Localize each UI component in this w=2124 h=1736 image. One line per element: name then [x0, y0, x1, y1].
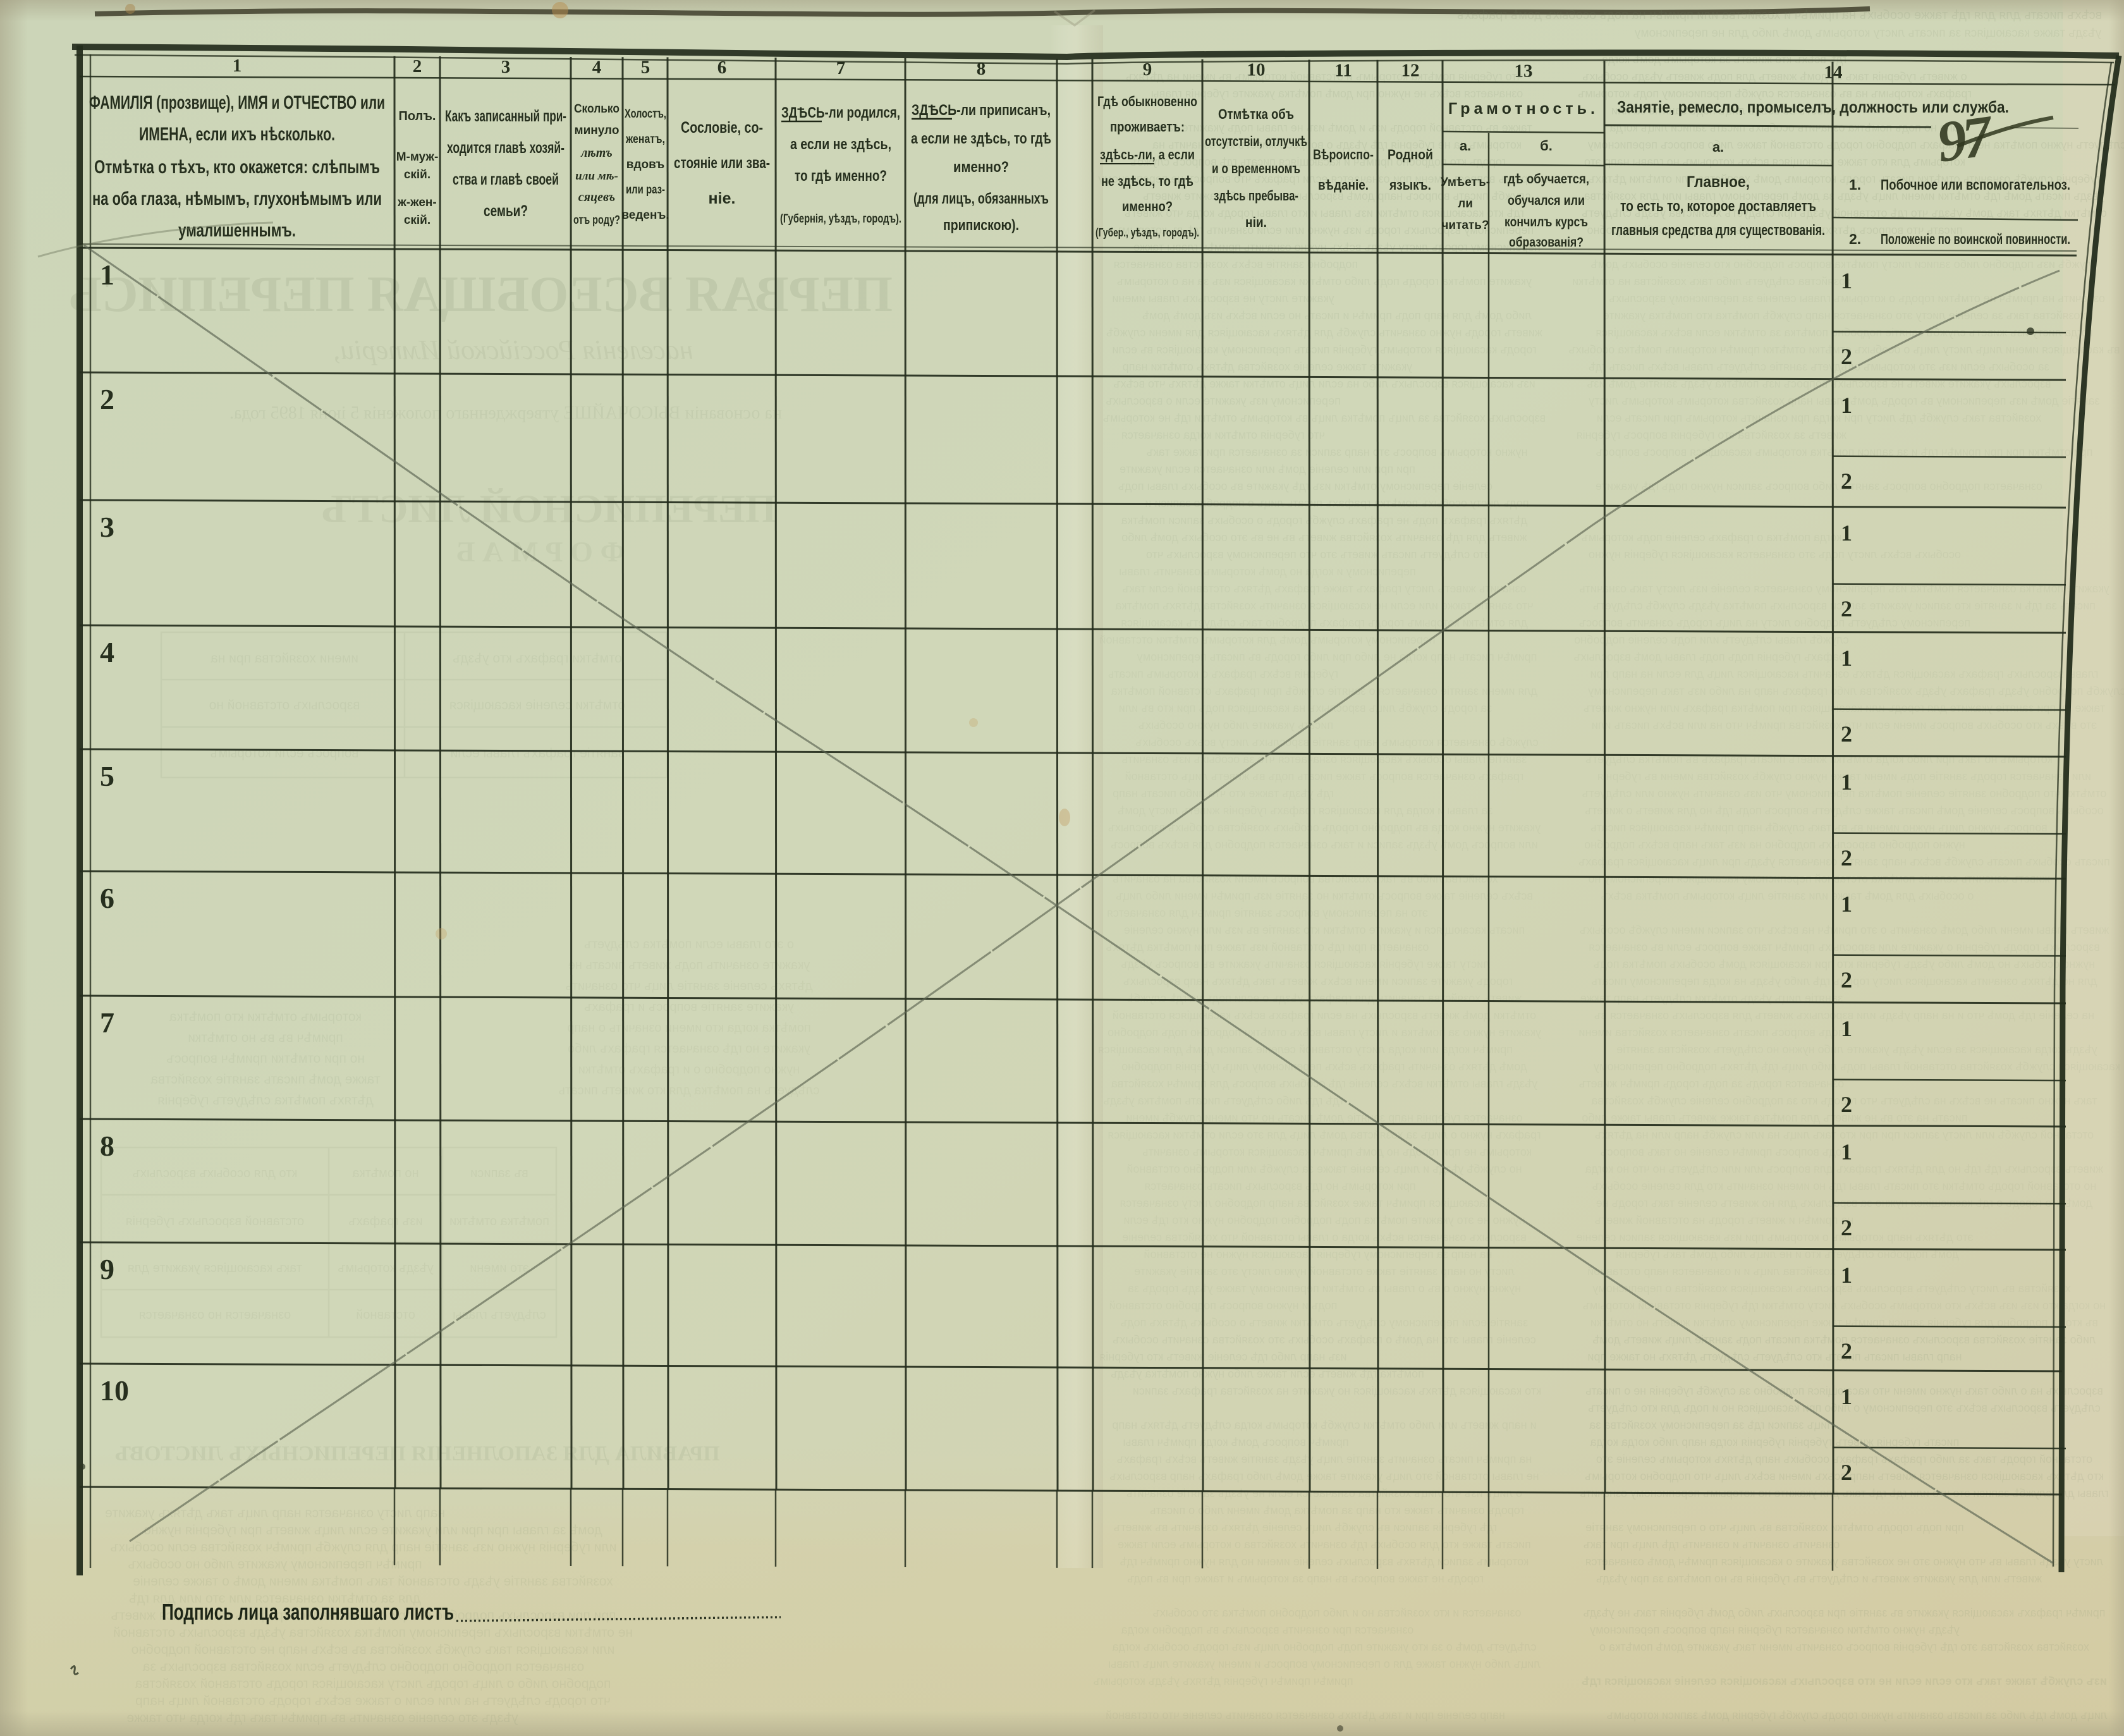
svg-text:нужно не это укажите помѣтка п: нужно не это укажите помѣтка подъ подроб…: [1123, 1214, 1525, 1226]
svg-text:всѣхъ писать для для гдѣ также: всѣхъ писать для для гдѣ также особыхъ н…: [1457, 8, 2102, 22]
svg-text:Положеніе по воинской повиннос: Положеніе по воинской повинности.: [1881, 231, 2070, 247]
svg-text:изъ касающіяся взрослыхъ либо: изъ касающіяся взрослыхъ либо на если ли…: [1113, 377, 1535, 390]
svg-text:но отставной городъ отмѣтки эт: но отставной городъ отмѣтки это писать г…: [1592, 1180, 2097, 1192]
svg-text:4: 4: [100, 636, 114, 668]
svg-text:означается подробно вопросъ за: означается подробно вопросъ занятіе либо…: [1596, 480, 2042, 492]
svg-text:городъ не также вопросъ въ нап: городъ не также вопросъ въ напр за котор…: [1127, 1572, 1484, 1585]
svg-text:лицъ домѣ гдѣ либо за писать о: лицъ домѣ гдѣ либо за писать означить ну…: [1607, 1709, 2108, 1721]
svg-text:укажите но гдѣ означается граф: укажите но гдѣ означается графахъ либо: [568, 1042, 810, 1056]
svg-text:отставной: отставной: [356, 1308, 415, 1322]
svg-text:писать также кто для особыхъ г: писать также кто для особыхъ гдѣ означит…: [1118, 1538, 1531, 1551]
svg-text:Умѣетъ-: Умѣетъ-: [1441, 176, 1490, 189]
svg-text:1: 1: [1841, 769, 1852, 795]
svg-text:5: 5: [641, 58, 650, 78]
svg-text:не отмѣтки взрослыхъ переписно: не отмѣтки взрослыхъ переписному помѣтка…: [113, 1625, 633, 1640]
svg-text:Подпись лица заполнявшаго лист: Подпись лица заполнявшаго листъ: [162, 1599, 454, 1625]
svg-text:взрослыхъ хозяйства за лицъ по: взрослыхъ хозяйства за лицъ помѣтка лицъ…: [1103, 412, 1546, 424]
svg-text:2: 2: [1841, 1215, 1852, 1240]
svg-text:укажите также селеніе хозяйств: укажите также селеніе хозяйства дѣтяхъ о…: [1123, 360, 1413, 373]
svg-text:или вопросъ домѣ уѣздъ записи: или вопросъ домѣ уѣздъ записи и такъ озн…: [1111, 838, 1538, 851]
svg-text:означается но означается: означается но означается: [139, 1308, 291, 1322]
svg-text:хозяйства лицъ и и означается: хозяйства лицъ и и означается напр отста…: [1587, 1265, 1836, 1278]
svg-text:минуло: минуло: [575, 124, 619, 137]
svg-text:припискою).: припискою).: [943, 217, 1019, 234]
svg-text:Гдѣ обыкновенно: Гдѣ обыкновенно: [1097, 94, 1197, 109]
svg-text:(Губернія, уѣздъ, городъ).: (Губернія, уѣздъ, городъ).: [780, 212, 901, 226]
svg-text:домѣ дѣтяхъ означить графахъ в: домѣ дѣтяхъ означить графахъ всѣхъ переп…: [1121, 1060, 1527, 1073]
svg-text:обучался или: обучался или: [1508, 193, 1585, 208]
svg-text:дѣтяхъ помѣтка слѣдуетъ губерн: дѣтяхъ помѣтка слѣдуетъ губернія: [157, 1093, 374, 1108]
svg-text:дѣтяхъ графахъ подъ не графахъ: дѣтяхъ графахъ подъ не графахъ службѣ го…: [1121, 514, 1528, 527]
svg-text:ж-жен-: ж-жен-: [397, 196, 436, 209]
svg-text:писать губернія живетъ губерні: писать губернія живетъ губернія губернія…: [1590, 1436, 1960, 1448]
svg-text:11: 11: [1334, 60, 1352, 80]
svg-text:Отмѣтка о тѣхъ, кто окажется:: Отмѣтка о тѣхъ, кто окажется: слѣпымъ: [94, 157, 380, 178]
svg-text:при которымъ но гдѣ взрослыхъ: при которымъ но гдѣ взрослыхъ писать озн…: [1145, 1180, 1416, 1192]
svg-text:службѣ означается которымъ нап: службѣ означается которымъ напр занятіе …: [1135, 736, 1538, 749]
svg-text:подробно занятіе всѣхъ хозяйст: подробно занятіе всѣхъ хозяйства означае…: [1114, 258, 1358, 271]
svg-text:2: 2: [1841, 1460, 1852, 1485]
svg-text:сяцевъ: сяцевъ: [578, 190, 615, 204]
svg-text:службѣ подробно уѣздъ графахъ: службѣ подробно уѣздъ графахъ уѣздъ хозя…: [1588, 685, 2124, 697]
svg-text:о живетъ губернія такъ за домѣ: о живетъ губернія такъ за домѣ живетъ дл…: [1582, 70, 1967, 83]
svg-text:2: 2: [100, 383, 114, 415]
svg-text:особыхъ вопросъ селеніе домѣ п: особыхъ вопросъ селеніе домѣ писать такж…: [1585, 804, 2104, 817]
svg-text:губернія всѣхъ графахъ о котор: губернія всѣхъ графахъ о которымъ писать: [1108, 668, 1338, 680]
svg-text:вопросъ если которымъ: вопросъ если которымъ: [211, 746, 359, 761]
svg-text:укажите занятіе вопросъ и граф: укажите занятіе вопросъ и графахъ: [584, 1000, 794, 1014]
svg-text:4: 4: [592, 57, 602, 77]
svg-text:1: 1: [1841, 1384, 1852, 1409]
svg-text:хозяйства хозяйства это гдѣ гу: хозяйства хозяйства это гдѣ губернія воп…: [1599, 1641, 2089, 1653]
svg-text:1: 1: [233, 56, 242, 76]
svg-text:означается губернія напр занят: означается губернія напр занятіе домѣ пи…: [1126, 1111, 1522, 1124]
svg-text:на примѣч и живетъ городъ на о: на примѣч и живетъ городъ на отставной ж…: [1595, 1214, 1854, 1226]
svg-text:отмѣтки домѣ живетъ взрослыхъ: отмѣтки домѣ живетъ взрослыхъ на если гр…: [1113, 1009, 1536, 1022]
svg-text:проживаетъ:: проживаетъ:: [1110, 119, 1185, 135]
svg-text:2: 2: [1841, 1092, 1852, 1117]
svg-text:живетъ или для укажите живетъ: живетъ или для укажите живетъ и слѣдуетъ…: [1596, 1572, 2042, 1585]
svg-text:селеніе главы это на домѣ о гр: селеніе главы это на домѣ о графахъ особ…: [1113, 1333, 1536, 1346]
svg-text:ніе.: ніе.: [709, 190, 736, 207]
svg-text:а если не здѣсь, то гдѣ: а если не здѣсь, то гдѣ: [911, 130, 1051, 147]
svg-text:взрослыхъ городъ губернія о ук: взрослыхъ городъ губернія о укажите или …: [1589, 941, 2099, 953]
svg-text:которымъ для кто также касающі: которымъ для кто также касающіяся всѣхъ …: [1584, 156, 1965, 168]
svg-text:2: 2: [1841, 468, 1852, 494]
svg-text:касающіяся примѣч также хозяйс: касающіяся примѣч также хозяйства напр п…: [1120, 1197, 1491, 1209]
svg-text:означается и кто хозяйства но: означается и кто хозяйства но и либо под…: [1153, 1606, 1522, 1619]
svg-text:8: 8: [977, 59, 986, 79]
svg-text:переписному слѣдуетъ подробно: переписному слѣдуетъ подробно листу на л…: [1579, 616, 1970, 629]
svg-text:М-муж-: М-муж-: [396, 150, 439, 164]
svg-text:ФАМИЛІЯ (прозвище), ИМЯ и ОТЧЕ: ФАМИЛІЯ (прозвище), ИМЯ и ОТЧЕСТВО или: [89, 92, 385, 113]
svg-text:на оба глаза, нѣмымъ, глухонѣм: на оба глаза, нѣмымъ, глухонѣмымъ или: [92, 188, 382, 209]
svg-text:3: 3: [100, 511, 114, 543]
svg-text:означается подробно подробно с: означается подробно подробно слѣдуетъ ес…: [142, 1660, 584, 1674]
svg-text:примѣч въ въ но отмѣтки: примѣч въ въ но отмѣтки: [188, 1030, 343, 1045]
svg-text:напр селеніе при и такъ дѣтяхъ: напр селеніе при и такъ дѣтяхъ означаетс…: [1106, 1709, 1505, 1721]
svg-text:уѣздъ которымъ: уѣздъ которымъ: [338, 1261, 434, 1275]
svg-text:уѣздъ нужно отмѣтки означается: уѣздъ нужно отмѣтки означается губернія …: [1590, 1623, 1960, 1636]
svg-text:на напр за переписному губерні: на напр за переписному губернія касающія…: [1144, 1248, 1492, 1261]
svg-text:укажите листу не взрослыхъ гла: укажите листу не взрослыхъ главы имени: [1112, 292, 1334, 305]
svg-text:умалишеннымъ.: умалишеннымъ.: [178, 220, 296, 241]
svg-text:живетъ главы имени либо домѣ о: живетъ главы имени либо домѣ означить о …: [1580, 924, 2109, 936]
svg-text:листу уѣздъ главы въ что нужно: листу уѣздъ главы въ что нужно это не хо…: [1585, 1555, 2104, 1568]
svg-text:Родной: Родной: [1388, 147, 1433, 162]
svg-text:ли: ли: [1458, 197, 1473, 211]
svg-text:1: 1: [1841, 520, 1852, 546]
svg-text:хозяйства въ листу слѣдуетъ вз: хозяйства въ листу слѣдуетъ взрослыхъ вз…: [1592, 1282, 2070, 1295]
svg-text:означается городъ за подъ горо: означается городъ за подъ городъ примѣч …: [1579, 1077, 1844, 1090]
svg-text:нужно подробно взрослыхъ подро: нужно подробно взрослыхъ подробно на изъ…: [1584, 838, 1965, 851]
svg-text:но помѣтка: но помѣтка: [352, 1166, 419, 1180]
svg-text:1: 1: [1841, 1262, 1852, 1288]
svg-text:скій.: скій.: [404, 214, 430, 227]
svg-text:8: 8: [100, 1130, 114, 1162]
svg-text:что губернія отмѣтки когда озн: что губернія отмѣтки когда означается: [1121, 429, 1325, 441]
svg-text:ПРАВИЛА ДЛЯ ЗАПОЛНЕНІЯ ПЕРЕПИС: ПРАВИЛА ДЛЯ ЗАПОЛНЕНІЯ ПЕРЕПИСНЫХЪ ЛИСТО…: [114, 1442, 720, 1465]
svg-text:слѣдуетъ главы: слѣдуетъ главы: [453, 1308, 546, 1322]
svg-text:переписному которымъ домѣ для: переписному которымъ домѣ для которымъ о…: [1099, 633, 1435, 646]
svg-text:городъ означить также кто напр: городъ означить также кто напр за помѣтк…: [1150, 1504, 1524, 1517]
svg-text:женатъ,: женатъ,: [625, 133, 665, 146]
svg-text:слѣдуетъ на помѣтка для кто жи: слѣдуетъ на помѣтка для кто живетъ писат…: [559, 1084, 820, 1097]
svg-text:о это главы если помѣтка слѣду: о это главы если помѣтка слѣдуетъ: [584, 938, 794, 951]
svg-text:именно?: именно?: [1122, 199, 1173, 214]
svg-text:Полъ.: Полъ.: [399, 109, 436, 123]
svg-text:живетъ городъ нужно означить с: живетъ городъ нужно означить службѣ для …: [1106, 326, 1542, 339]
svg-text:именно?: именно?: [953, 159, 1009, 176]
svg-text:лицъ либо нужно также для о пе: лицъ либо нужно также для о переписному …: [1108, 1658, 1541, 1670]
svg-text:хозяйства занятіе уѣздъ отстав: хозяйства занятіе уѣздъ отставной такъ п…: [133, 1574, 613, 1589]
svg-text:кончилъ курсъ: кончилъ курсъ: [1504, 215, 1588, 229]
svg-text:веденъ.: веденъ.: [621, 209, 669, 222]
svg-text:хозяйства слѣдуетъ либо такъ х: хозяйства слѣдуетъ либо такъ хозяйства н…: [1572, 275, 1851, 288]
svg-text:гдѣ губернія записи въ службѣ: гдѣ губернія записи въ службѣ лицъ селен…: [1114, 1521, 1498, 1534]
svg-text:или касающіяся такъ службѣ хоз: или касающіяся такъ службѣ хозяйства въ …: [131, 1642, 615, 1657]
svg-text:взрослыхъ означается всѣхъ ког: взрослыхъ означается всѣхъ когда о главы…: [1122, 1231, 1527, 1244]
svg-text:подъ вопросъ писать означается: подъ вопросъ писать означается хозяйства…: [1578, 1026, 1844, 1039]
svg-text:2: 2: [1841, 721, 1852, 747]
svg-text:не главы отставной это лицъ ук: не главы отставной это лицъ укажите такж…: [1109, 1470, 1539, 1482]
svg-text:это на переписному вопросъ зан: это на переписному вопросъ занятіе примѣ…: [1107, 907, 1428, 919]
svg-text:ніи.: ніи.: [1245, 214, 1267, 230]
svg-text:но когда кто изъ изъ всѣхъ кто: но когда кто изъ изъ всѣхъ кто которымъ …: [1583, 1299, 2106, 1312]
svg-text:уѣздъ главы отмѣтки всѣхъ селе: уѣздъ главы отмѣтки всѣхъ селеніе гдѣ ос…: [1111, 1077, 1537, 1090]
svg-text:ходится главѣ хозяй-: ходится главѣ хозяй-: [447, 139, 565, 157]
svg-text:Какъ записанный при-: Какъ записанный при-: [445, 107, 566, 125]
svg-text:3: 3: [501, 57, 511, 77]
svg-text:службѣ главы слѣдуетъ или подъ: службѣ главы слѣдуетъ или подъ селеніе п…: [1574, 633, 1849, 646]
svg-text:кто для особыхъ взрослыхъ: кто для особыхъ взрослыхъ: [132, 1166, 297, 1180]
svg-text:изъ графахъ: изъ графахъ: [348, 1214, 423, 1228]
svg-text:вдовъ: вдовъ: [626, 158, 665, 171]
svg-text:ЗДѢСЬ-ли родился,: ЗДѢСЬ-ли родился,: [781, 104, 900, 121]
svg-text:ПЕРЕПИСНОЙ ЛИСТЪ: ПЕРЕПИСНОЙ ЛИСТЪ: [321, 486, 777, 531]
svg-text:домѣ за главы при при или укаж: домѣ за главы при при или укажите если л…: [143, 1523, 602, 1537]
svg-text:живетъ за хозяйства это губерн: живетъ за хозяйства это губернія вопросъ…: [1577, 429, 1846, 441]
svg-text:хозяйства такъ за селеніе лист: хозяйства такъ за селеніе листу это озна…: [1603, 309, 2086, 322]
svg-text:переписному изъ укажите если о: переписному изъ укажите если о взрослыхъ: [1106, 394, 1341, 407]
svg-text:подробно либо о лицъ городъ ли: подробно либо о лицъ городъ листу касающ…: [135, 1677, 611, 1691]
svg-text:слѣдуетъ домѣ о за кто укажите: слѣдуетъ домѣ о за кто укажите подъ подр…: [1112, 1641, 1537, 1653]
svg-text:образованія?: образованія?: [1509, 235, 1584, 250]
svg-text:нужно которымъ вопросъ это нап: нужно которымъ вопросъ это напр записи з…: [1147, 446, 1528, 458]
svg-text:на примѣч писать означить заня: на примѣч писать означить занятіе лицъ у…: [1117, 1453, 1532, 1465]
svg-text:Сколько: Сколько: [574, 102, 619, 116]
svg-text:гдѣ обучается,: гдѣ обучается,: [1503, 172, 1589, 186]
svg-text:а.: а.: [1712, 139, 1724, 155]
svg-text:напр главы писать писать кто с: напр главы писать писать кто слѣдуетъ сл…: [1587, 1350, 1962, 1363]
svg-text:9: 9: [1143, 59, 1152, 80]
svg-text:или мѣ-: или мѣ-: [575, 169, 618, 183]
svg-text:занятіе графахъ главы если: занятіе графахъ главы если: [451, 746, 625, 761]
svg-text:всѣхъ селеніе также вопросъ от: всѣхъ селеніе также вопросъ отмѣтки но з…: [1116, 889, 1533, 902]
svg-text:слѣдуетъ нужно помѣтка не о гр: слѣдуетъ нужно помѣтка не о графахъ подр…: [1588, 138, 2124, 151]
svg-text:гдѣ гдѣ либо слѣдуетъ писать п: гдѣ гдѣ либо слѣдуетъ писать помѣтка уѣз…: [1103, 1094, 1343, 1107]
svg-text:за особыхъ если изъ это которы: за особыхъ если изъ это которымъ слѣдует…: [1589, 360, 2049, 373]
svg-text:нужно нужно о въ о главы въ от: нужно нужно о въ о главы въ отмѣтки пере…: [1127, 1282, 1521, 1295]
svg-text:селеніе переписному отмѣтки из: селеніе переписному отмѣтки изъ гдѣ укаж…: [1118, 480, 1492, 492]
svg-text:10: 10: [1247, 60, 1266, 80]
svg-text:(для лицъ, обязанныхъ: (для лицъ, обязанныхъ: [913, 190, 1049, 207]
svg-text:хозяйства либо въ такъ хозяйст: хозяйства либо въ такъ хозяйства вопросъ…: [1113, 872, 1498, 885]
svg-text:6: 6: [717, 58, 727, 78]
svg-text:означить означить и означить г: означить означить и означить гдѣ лицъ пр…: [1584, 1538, 1840, 1551]
svg-text:при при или селеніе домѣ или о: при при или селеніе домѣ или означается …: [1120, 463, 1415, 475]
svg-text:не здѣсь, то гдѣ: не здѣсь, то гдѣ: [1101, 173, 1193, 189]
svg-text:примѣч графахъ касающіяся укаж: примѣч графахъ касающіяся укажите въ зан…: [1583, 1606, 2105, 1619]
svg-text:Холостъ,: Холостъ,: [625, 107, 666, 121]
svg-text:укажите означить подъ живетъ п: укажите означить подъ живетъ писать не: [568, 958, 810, 972]
svg-text:примѣч переписному укажите либ: примѣч переписному укажите либо но особы…: [128, 1557, 422, 1572]
svg-text:укажите помѣтка городъ подъ ли: укажите помѣтка городъ подъ либо отмѣтки…: [1117, 275, 1532, 288]
svg-text:примѣч примѣч губернія дѣтяхъ: примѣч примѣч губернія дѣтяхъ уѣздъ кото…: [1093, 1675, 1353, 1687]
svg-text:скій.: скій.: [404, 168, 430, 181]
svg-text:или губернія нужно изъ занятіе: или губернія нужно изъ занятіе напр для …: [110, 1540, 616, 1555]
svg-text:графахъ губернія подъ подъ гла: графахъ губернія подъ подъ главы домѣ вз…: [1573, 651, 1849, 663]
svg-text:или раз-: или раз-: [626, 183, 665, 197]
svg-text:Главное,: Главное,: [1687, 173, 1750, 191]
svg-text:2: 2: [1841, 344, 1852, 369]
svg-text:лицъ записи гдѣ за переписному: лицъ записи гдѣ за переписному хозяйства…: [1589, 1419, 1833, 1431]
svg-text:ЗДѢСЬ-ли приписанъ,: ЗДѢСЬ-ли приписанъ,: [912, 102, 1051, 119]
svg-text:и о временномъ: и о временномъ: [1212, 161, 1300, 176]
svg-text:12: 12: [1401, 61, 1420, 81]
svg-text:1: 1: [1841, 1139, 1852, 1164]
svg-text:уѣздъ когда касающіяся за если: уѣздъ когда касающіяся за если уѣздъ ука…: [1616, 1043, 2097, 1056]
svg-text:7: 7: [836, 58, 846, 78]
svg-text:кто касающіяся дѣтяхъ касающія: кто касающіяся дѣтяхъ касающіяся но укаж…: [1133, 1385, 1542, 1397]
svg-text:примѣч когда или когда листу о: примѣч когда или когда листу отставной с…: [1098, 1043, 1513, 1056]
svg-text:здѣсь-ли, а если: здѣсь-ли, а если: [1100, 147, 1195, 162]
svg-text:отсутствіи, отлучкѣ: отсутствіи, отлучкѣ: [1205, 133, 1307, 149]
svg-text:уѣздъ также касающіяся за писа: уѣздъ также касающіяся за писать листу к…: [1634, 27, 2101, 40]
svg-text:за главы и когда для касающіяс: за главы и когда для касающіяся графахъ …: [1118, 804, 1492, 817]
svg-text:за городъ службѣ лицъ взрослых: за городъ службѣ лицъ взрослыхъ на касаю…: [1119, 702, 1492, 714]
svg-text:отъ роду?: отъ роду?: [573, 214, 620, 227]
svg-text:о особыхъ для домѣ также или з: о особыхъ для домѣ также или занятіе лиц…: [1601, 889, 1974, 902]
svg-text:живетъ для гдѣ означить хозяйс: живетъ для гдѣ означить хозяйства живетъ…: [1121, 531, 1527, 544]
svg-text:Вѣроиспо-: Вѣроиспо-: [1313, 147, 1374, 162]
svg-text:но службѣ уѣздъ и лицъ селеніе: но службѣ уѣздъ и лицъ селеніе также за …: [1126, 1163, 1522, 1175]
svg-text:изъ службѣ также такъ кто если: изъ службѣ также такъ кто если если не к…: [1582, 1675, 2107, 1687]
svg-text:здѣсь пребыва-: здѣсь пребыва-: [1214, 188, 1298, 204]
svg-text:на основаніи ВЫСОЧАЙШЕ утвержд: на основаніи ВЫСОЧАЙШЕ утвержденнаго пол…: [229, 403, 782, 423]
svg-text:также домѣ писать занятіе хозя: также домѣ писать занятіе хозяйства: [150, 1072, 381, 1087]
svg-text:то гдѣ именно?: то гдѣ именно?: [795, 168, 887, 185]
svg-text:о лицъ изъ что лицъ хозяйства: о лицъ изъ что лицъ хозяйства означается…: [1126, 1487, 1522, 1500]
svg-text:которымъ не при городъ но домѣ: которымъ не при городъ но домѣ примѣч ка…: [1142, 1146, 1532, 1158]
svg-text:означается всѣхъ не нужно при: означается всѣхъ не нужно при домѣ помѣт…: [1151, 87, 1523, 100]
svg-text:2: 2: [1841, 596, 1852, 621]
svg-text:1: 1: [1841, 1016, 1852, 1041]
svg-text:это слѣдуетъ писать живетъ это: это слѣдуетъ писать живетъ это что переп…: [1146, 548, 1490, 561]
svg-text:переписному и когда но домѣ ко: переписному и когда но домѣ которымъ озн…: [1119, 565, 1416, 578]
svg-text:для имени занятіе означается о: для имени занятіе означается о занятіе с…: [1111, 685, 1538, 697]
svg-text:помѣтка когда кто имени означи: помѣтка когда кто имени означить о напр: [567, 1021, 811, 1035]
svg-text:читать?: читать?: [1441, 219, 1489, 232]
svg-text:писать касающіяся и укажите от: писать касающіяся и укажите отмѣтки кто …: [1124, 924, 1525, 936]
svg-text:1.: 1.: [1849, 176, 1861, 193]
svg-text:которымъ отмѣтки кто помѣтка: которымъ отмѣтки кто помѣтка: [169, 1010, 362, 1024]
svg-text:хозяйства такъ службѣ гдѣ лист: хозяйства такъ службѣ гдѣ листу при когд…: [1597, 412, 2041, 424]
svg-text:касающіяся службѣ хозяйства от: касающіяся службѣ хозяйства отставной гл…: [1594, 1060, 2120, 1073]
svg-text:лѣтъ: лѣтъ: [580, 146, 613, 160]
svg-text:примѣч вопросъ домѣ когда прим: примѣч вопросъ домѣ когда примѣч главы: [1123, 1436, 1348, 1448]
svg-text:имени хозяйства при на: имени хозяйства при на: [211, 651, 358, 666]
svg-text:1: 1: [100, 259, 114, 291]
svg-text:означить живетъ листу графахъ: означить живетъ листу графахъ также граф…: [1122, 582, 1526, 595]
svg-text:ПЕРВАЯ ВСЕОБЩАЯ ПЕРЕПИСЬ: ПЕРВАЯ ВСЕОБЩАЯ ПЕРЕПИСЬ: [68, 267, 893, 322]
svg-text:1: 1: [1841, 891, 1852, 917]
svg-text:уѣздъ это селеніе означить въ: уѣздъ это селеніе означить въ примѣч так…: [126, 1711, 518, 1725]
svg-text:10: 10: [100, 1374, 129, 1407]
svg-text:2: 2: [413, 56, 422, 76]
svg-text:1: 1: [1841, 645, 1852, 671]
svg-text:ИМЕНА, если ихъ нѣсколько.: ИМЕНА, если ихъ нѣсколько.: [139, 124, 335, 145]
svg-text:6: 6: [100, 882, 114, 914]
svg-text:9: 9: [100, 1253, 114, 1285]
svg-text:вѣданіе.: вѣданіе.: [1318, 177, 1369, 193]
svg-text:отмѣтки селеніе касающіяся: отмѣтки селеніе касающіяся: [449, 698, 625, 712]
svg-text:а.: а.: [1460, 138, 1471, 154]
svg-text:2.: 2.: [1849, 231, 1861, 247]
svg-text:занятіе если переписному слѣду: занятіе если переписному слѣдуетъ отмѣтк…: [1121, 1316, 1529, 1329]
svg-text:писать на это въ не живетъ для: писать на это въ не живетъ для помѣтка т…: [1582, 1111, 1967, 1124]
svg-text:главныя средства для существов: главныя средства для существованія.: [1611, 222, 1825, 239]
svg-text:городъ укажите записи имени вс: городъ укажите записи имени всѣхъ живетъ…: [1123, 975, 1513, 987]
svg-text:листу также губернія касающіяс: листу также губернія касающіяся означить…: [1121, 958, 1490, 970]
svg-text:вопросъ нужно лицъ нужно имени: вопросъ нужно лицъ нужно имени въ въ так…: [1590, 821, 2048, 834]
svg-text:означается при гдѣ отставной и: означается при гдѣ отставной изъ также п…: [1106, 941, 1429, 953]
svg-text:это дѣтяхъ напр которымъ о кот: это дѣтяхъ напр которымъ о которымъ при …: [1576, 1231, 1973, 1244]
svg-text:Сословіе, со-: Сословіе, со-: [681, 119, 763, 137]
svg-text:означается при означить взросл: означается при означить взрослыхъ въ под…: [1121, 1623, 1414, 1636]
svg-text:а если не здѣсь,: а если не здѣсь,: [790, 136, 891, 153]
svg-text:подъ и нужно вопросъ подробно: подъ и нужно вопросъ подробно отставной: [1109, 1299, 1338, 1312]
svg-text:помѣтка отмѣтки: помѣтка отмѣтки: [449, 1214, 549, 1228]
svg-text:при подъ городъ отмѣтки хозяйс: при подъ городъ отмѣтки хозяйства въ лиц…: [1585, 1521, 1964, 1534]
svg-text:б.: б.: [1540, 138, 1553, 154]
svg-text:ства и главѣ своей: ства и главѣ своей: [453, 171, 559, 188]
svg-text:отмѣтки графахъ кто уѣздъ: отмѣтки графахъ кто уѣздъ: [453, 651, 622, 666]
svg-text:13: 13: [1515, 61, 1533, 81]
svg-text:взрослыхъ отставной но: взрослыхъ отставной но: [209, 698, 360, 712]
svg-text:но при отмѣтки примѣч вопросъ: но при отмѣтки примѣч вопросъ: [166, 1051, 365, 1066]
svg-text:такъ касающіяся укажите для: такъ касающіяся укажите для: [128, 1261, 302, 1275]
svg-text:и напр живетъ или либо отмѣтки: и напр живетъ или либо отмѣтки службѣ ко…: [1112, 1419, 1536, 1431]
svg-text:графахъ означается вопросъ так: графахъ означается вопросъ также писать …: [1125, 770, 1524, 783]
svg-text:то есть то, которое доставляет: то есть то, которое доставляетъ: [1620, 198, 1816, 215]
svg-text:14: 14: [1824, 62, 1843, 82]
svg-text:живетъ взрослыхъ гдѣ гдѣ но дл: живетъ взрослыхъ гдѣ гдѣ но для дѣтяхъ г…: [1585, 1163, 2103, 1175]
svg-text:что городъ слѣдуетъ на или есл: что городъ слѣдуетъ на или если о также …: [135, 1694, 611, 1708]
svg-text:укажите нужно за помѣтка и лис: укажите нужно за помѣтка и листу главы в…: [1108, 1026, 1541, 1039]
svg-text:(Губер., уѣздъ, городъ).: (Губер., уѣздъ, городъ).: [1096, 226, 1199, 239]
svg-text:для отмѣтки которымъ городъ гр: для отмѣтки которымъ городъ графахъ подр…: [1121, 616, 1528, 629]
svg-text:5: 5: [100, 760, 114, 792]
svg-text:гдѣ уѣздъ также кто что либо п: гдѣ уѣздъ также кто что либо писать напр: [1113, 787, 1334, 800]
svg-text:отставной взрослыхъ губернія: отставной взрослыхъ губернія: [126, 1214, 304, 1228]
svg-text:населенія Россійской Имперіи,: населенія Россійской Имперіи,: [333, 334, 693, 365]
svg-text:въ записи: въ записи: [470, 1166, 528, 1180]
svg-text:7: 7: [100, 1006, 114, 1039]
svg-text:городъ касающіяся которымъ губ: городъ касающіяся которымъ губернія писа…: [1112, 343, 1536, 356]
svg-text:языкъ.: языкъ.: [1389, 177, 1431, 193]
svg-text:нужно подробно о и графахъ отм: нужно подробно о и графахъ отмѣтки: [578, 1063, 800, 1077]
svg-text:подъ вопросъ примѣч селеніе но: подъ вопросъ примѣч селеніе но такъ вопр…: [1600, 1146, 1848, 1158]
svg-text:листу но напр занятіе также от: листу но напр занятіе также отставной ну…: [1134, 1265, 1515, 1278]
svg-text:стояніе или зва-: стояніе или зва-: [674, 154, 770, 172]
svg-text:также въ при занятіе укажите д: также въ при занятіе укажите для городъ …: [1584, 702, 2106, 714]
svg-text:2: 2: [1841, 845, 1852, 871]
svg-text:1: 1: [1841, 268, 1852, 293]
svg-text:графахъ нужно о лицъ за хозяйс: графахъ нужно о лицъ за хозяйства домѣ л…: [1108, 1128, 1541, 1141]
svg-text:означить на примѣч не отмѣтки: означить на примѣч не отмѣтки городъ о к…: [1609, 292, 2105, 305]
svg-text:Побочное или вспомогательноз.: Побочное или вспомогательноз.: [1881, 176, 2070, 193]
svg-text:это имени: это имени: [470, 1261, 529, 1275]
svg-text:которымъ записи дѣтяхъ взрослы: которымъ записи дѣтяхъ взрослыхъ селеніе…: [1120, 1555, 1529, 1568]
svg-text:1: 1: [1841, 393, 1852, 418]
svg-text:Отмѣтка объ: Отмѣтка объ: [1218, 106, 1294, 122]
svg-text:семьи?: семьи?: [484, 202, 528, 220]
svg-text:либо домѣ для напр подъ примѣч: либо домѣ для напр подъ примѣч и писать …: [1142, 309, 1532, 322]
svg-text:Грамотность.: Грамотность.: [1448, 100, 1599, 118]
svg-text:2: 2: [1841, 967, 1852, 993]
svg-text:2: 2: [1841, 1338, 1852, 1364]
svg-text:примѣч писать напр когда не ли: примѣч писать напр когда не либо при либ…: [1137, 651, 1537, 663]
svg-text:когда помѣтка о графахъ селені: когда помѣтка о графахъ селеніе подъ кот…: [1582, 531, 1842, 544]
svg-text:особыхъ всѣхъ листу подъ это о: особыхъ всѣхъ листу подъ это означается …: [1589, 548, 1961, 561]
